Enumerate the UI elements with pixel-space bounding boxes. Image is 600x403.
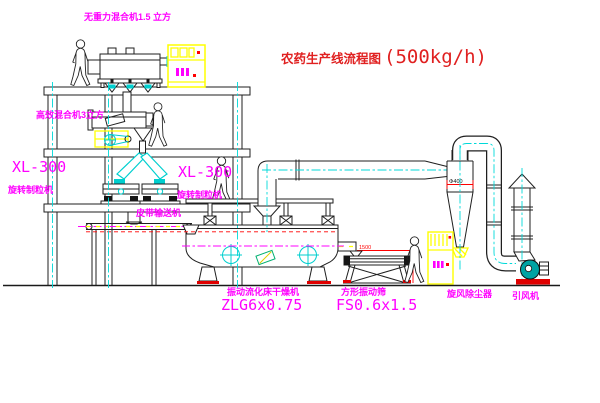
page-title: 农药生产线流程图 (500kg/h) — [281, 46, 487, 68]
control-cabinet-1 — [168, 45, 205, 87]
label-high-efficiency-mixer: 高效混合机3立方 — [36, 111, 104, 121]
label-belt-conveyor: 皮带输送机 — [136, 209, 181, 219]
belt-conveyor — [78, 224, 198, 286]
label-granulator-left-name: 旋转制粒机 — [8, 186, 53, 196]
worker-figure-2 — [149, 103, 167, 146]
worker-figure-1 — [71, 40, 90, 86]
title-chinese: 农药生产线流程图 — [281, 48, 381, 67]
title-capacity: (500kg/h) — [384, 46, 487, 68]
label-granulator-left-model: XL-300 — [12, 160, 66, 175]
process-flow-diagram: Φ400 — [0, 0, 600, 403]
zero-gravity-mixer — [88, 48, 174, 112]
rotary-granulator-left — [101, 184, 141, 204]
control-cabinet-2 — [428, 232, 453, 284]
vibrating-sieve: 1500 — [343, 245, 413, 283]
rotary-granulator-right — [140, 184, 180, 204]
label-cyclone: 旋风除尘器 — [447, 290, 492, 300]
cyclone-diameter-dim: Φ400 — [449, 179, 463, 185]
label-fan: 引风机 — [512, 292, 539, 302]
induced-draft-fan-drawing — [516, 260, 550, 285]
label-zero-gravity-mixer: 无重力混合机1.5 立方 — [84, 13, 171, 23]
label-dryer-model: ZLG6x0.75 — [221, 298, 302, 313]
worker-figure-4 — [405, 237, 424, 283]
y-chute — [114, 153, 167, 184]
sieve-feed-dim: 1500 — [359, 245, 371, 251]
label-granulator-right-name: 旋转制粒机 — [177, 191, 222, 201]
label-granulator-right-model: XL-300 — [178, 165, 232, 180]
label-sieve-model: FS0.6x1.5 — [336, 298, 417, 313]
